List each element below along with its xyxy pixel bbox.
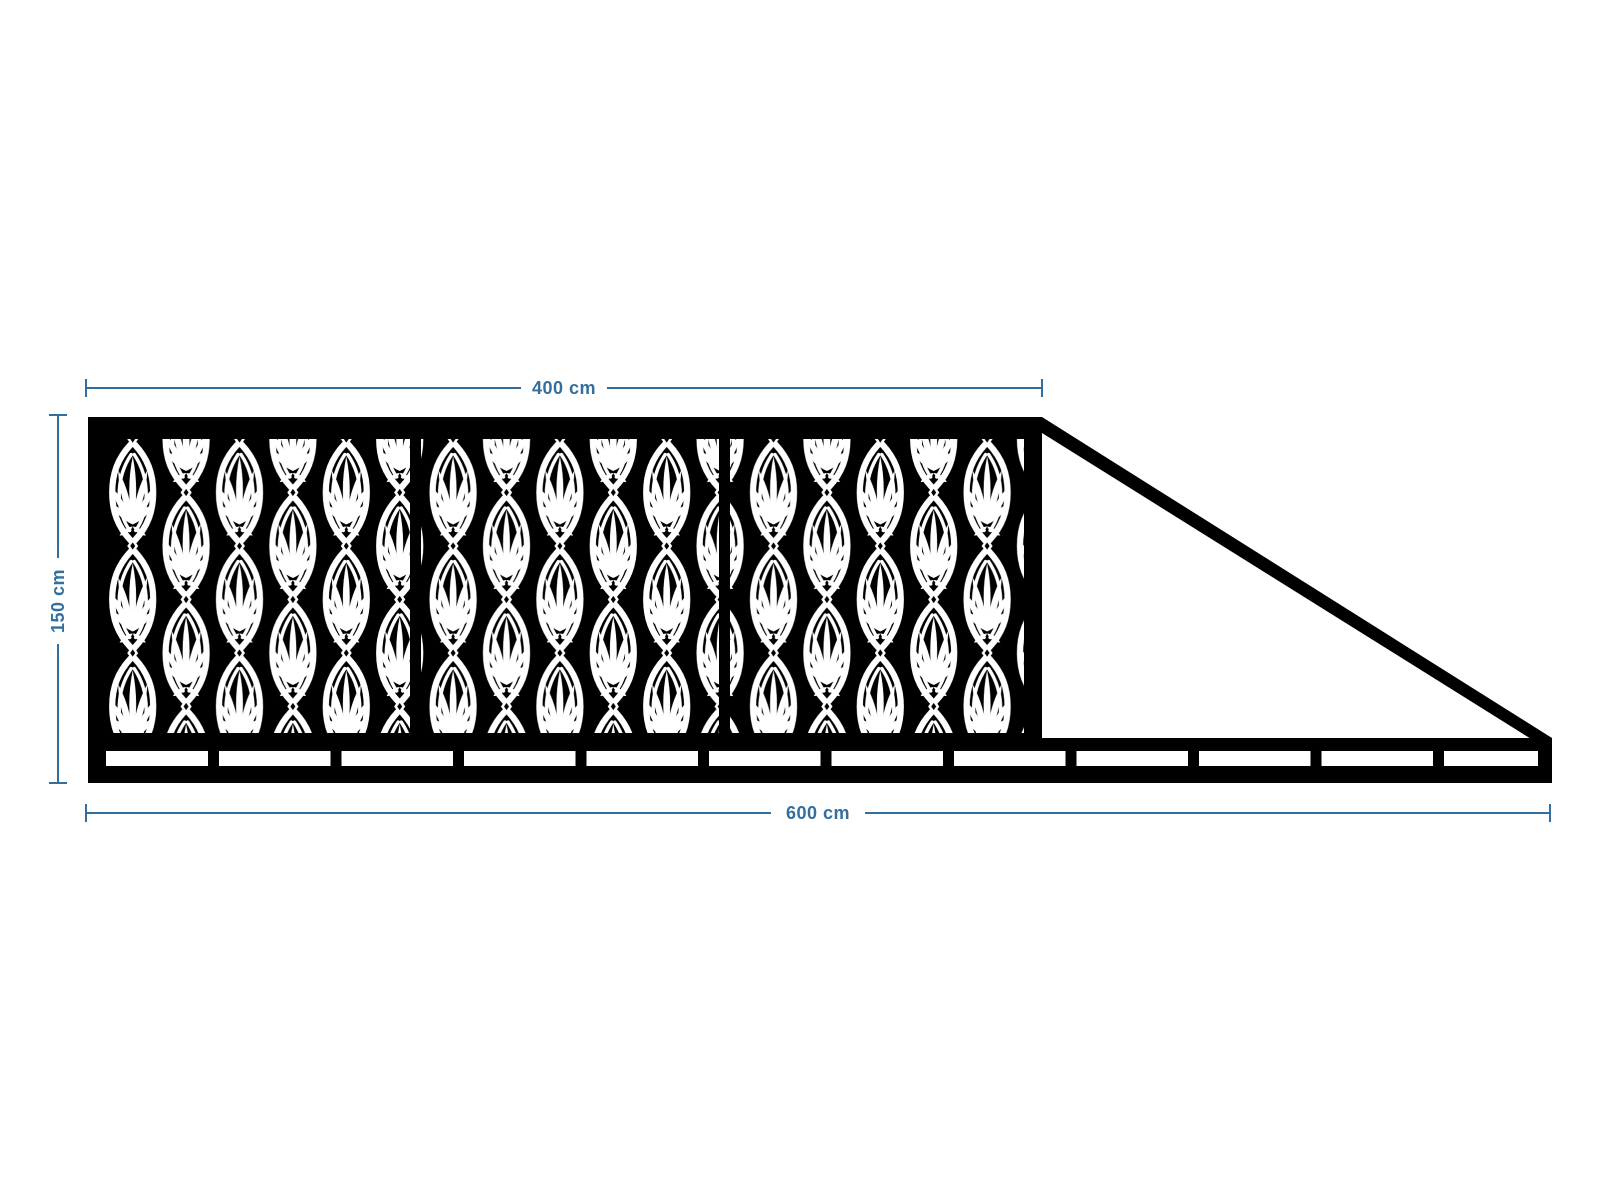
rail-spacer-block: [453, 751, 464, 766]
dimension-label-top: 400 cm: [532, 378, 596, 398]
gate-mullion-2: [719, 439, 730, 733]
gate-frame-left-stile: [88, 417, 106, 751]
rail-spacer-block: [698, 751, 709, 766]
tail-diagonal-brace: [1042, 417, 1552, 752]
gate-mullion-1: [410, 439, 421, 733]
ground-track-bar: [88, 766, 1552, 783]
gate-panel-2: [421, 439, 719, 733]
dimension-label-bottom: 600 cm: [786, 803, 850, 823]
rail-spacer-block: [1311, 751, 1322, 766]
dimension-top: 400 cm: [86, 378, 1042, 398]
gate-panel-3: [730, 439, 1024, 733]
rail-spacer-block: [1188, 751, 1199, 766]
rail-end-cap-left: [88, 751, 106, 766]
gate-leaf: [88, 417, 1042, 751]
gate-frame-bottom-rail: [88, 733, 1042, 751]
gate-panel-1: [106, 439, 410, 733]
gate-frame-right-stile: [1024, 417, 1042, 751]
rail-spacer-block: [943, 751, 954, 766]
dimension-label-left: 150 cm: [48, 569, 68, 633]
cantilever-tail: [1042, 417, 1552, 752]
dimension-left: 150 cm: [48, 415, 68, 783]
gate-technical-drawing: 400 cm 150 cm 600 cm: [0, 0, 1600, 1200]
rail-spacer-block: [576, 751, 587, 766]
rail-spacer-block: [1433, 751, 1444, 766]
rail-spacer-block: [1066, 751, 1077, 766]
dimension-bottom: 600 cm: [86, 803, 1550, 823]
drawing-canvas: 400 cm 150 cm 600 cm: [0, 0, 1600, 1200]
rail-spacer-block: [821, 751, 832, 766]
bottom-rail-assembly: [88, 751, 1552, 783]
gate-frame-top-rail: [88, 417, 1042, 439]
rail-spacer-block: [331, 751, 342, 766]
tail-bottom-chord: [1042, 738, 1552, 751]
rail-spacer-block: [208, 751, 219, 766]
rail-end-cap-right: [1538, 751, 1552, 766]
